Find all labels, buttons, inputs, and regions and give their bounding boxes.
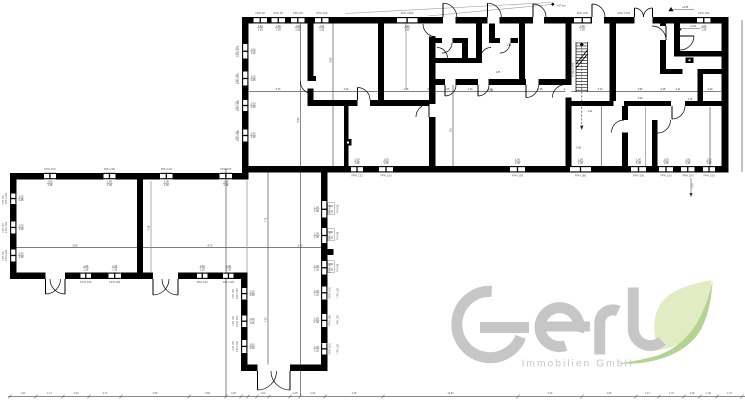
svg-text:2.96: 2.96 bbox=[638, 88, 643, 91]
svg-text:FPH 100: FPH 100 bbox=[161, 167, 172, 171]
svg-text:FPH 100: FPH 100 bbox=[698, 11, 709, 15]
svg-text:2.92: 2.92 bbox=[588, 111, 593, 113]
svg-text:FPH 100: FPH 100 bbox=[235, 288, 239, 299]
svg-text:1.00: 1.00 bbox=[251, 48, 256, 51]
svg-text:1.49: 1.49 bbox=[706, 392, 711, 395]
svg-text:FPH 100: FPH 100 bbox=[80, 280, 91, 284]
svg-text:1.35: 1.35 bbox=[251, 79, 256, 82]
svg-text:FPH 30: FPH 30 bbox=[274, 11, 284, 15]
svg-text:FPH 120: FPH 120 bbox=[197, 280, 208, 284]
svg-text:1.35: 1.35 bbox=[226, 268, 231, 271]
svg-text:1.35: 1.35 bbox=[355, 162, 360, 165]
svg-text:1.35: 1.35 bbox=[664, 162, 669, 165]
svg-text:FPH 100: FPH 100 bbox=[109, 280, 120, 284]
svg-text:1.35: 1.35 bbox=[685, 162, 690, 165]
svg-text:3.93: 3.93 bbox=[330, 57, 333, 62]
svg-text:1.35: 1.35 bbox=[295, 28, 300, 31]
svg-text:1.35: 1.35 bbox=[314, 210, 319, 213]
svg-text:1.35: 1.35 bbox=[319, 28, 324, 31]
svg-text:1.00: 1.00 bbox=[314, 265, 319, 268]
svg-text:4.45: 4.45 bbox=[352, 392, 357, 395]
svg-text:FPH 100: FPH 100 bbox=[232, 316, 235, 326]
svg-text:FPH 100: FPH 100 bbox=[236, 101, 239, 111]
svg-text:2.86: 2.86 bbox=[153, 392, 158, 395]
svg-text:3.10: 3.10 bbox=[598, 88, 603, 91]
svg-text:7.13: 7.13 bbox=[265, 317, 268, 322]
svg-text:FPH 100: FPH 100 bbox=[703, 174, 714, 178]
svg-text:1.35: 1.35 bbox=[251, 136, 256, 139]
svg-text:1.35: 1.35 bbox=[314, 293, 319, 296]
svg-text:FPH 100: FPH 100 bbox=[220, 167, 231, 171]
svg-text:FPH 98: FPH 98 bbox=[328, 263, 332, 273]
svg-text:2.15: 2.15 bbox=[688, 99, 693, 101]
svg-text:FPH 100: FPH 100 bbox=[328, 287, 332, 298]
svg-text:4.30: 4.30 bbox=[344, 88, 349, 91]
svg-text:0.25: 0.25 bbox=[293, 392, 298, 395]
svg-text:2.60: 2.60 bbox=[576, 147, 581, 150]
svg-text:FPH 100: FPH 100 bbox=[44, 167, 55, 171]
svg-text:1.00: 1.00 bbox=[314, 290, 319, 293]
svg-text:1.17: 1.17 bbox=[645, 392, 650, 395]
svg-text:1.35: 1.35 bbox=[47, 184, 52, 187]
svg-text:1.35: 1.35 bbox=[276, 28, 281, 31]
svg-text:FPH 40: FPH 40 bbox=[293, 11, 303, 15]
svg-text:FPH 98: FPH 98 bbox=[337, 231, 340, 240]
svg-text:1.35: 1.35 bbox=[251, 52, 256, 55]
svg-text:FPH 100: FPH 100 bbox=[235, 340, 239, 351]
svg-text:1.35: 1.35 bbox=[19, 199, 24, 202]
svg-text:Immobilien GmbH: Immobilien GmbH bbox=[522, 359, 634, 370]
svg-text:FPH 100: FPH 100 bbox=[577, 11, 588, 15]
svg-text:1.00: 1.00 bbox=[314, 317, 319, 320]
svg-text:2.40: 2.40 bbox=[74, 392, 79, 395]
svg-text:FPH 170F: FPH 170F bbox=[618, 11, 631, 15]
svg-text:FPH 100: FPH 100 bbox=[328, 343, 332, 354]
svg-text:1.66: 1.66 bbox=[607, 392, 612, 395]
svg-text:1.35: 1.35 bbox=[250, 347, 255, 350]
svg-text:1.74: 1.74 bbox=[669, 392, 674, 395]
svg-text:FPH 104: FPH 104 bbox=[2, 251, 5, 261]
svg-text:1.02: 1.02 bbox=[261, 392, 266, 395]
svg-text:FPH 120: FPH 120 bbox=[316, 11, 327, 15]
svg-text:1.00: 1.00 bbox=[19, 196, 24, 199]
svg-text:FPH 104: FPH 104 bbox=[2, 195, 5, 205]
svg-text:0.99: 0.99 bbox=[464, 45, 469, 47]
svg-text:1.46: 1.46 bbox=[690, 392, 695, 395]
svg-text:2.43: 2.43 bbox=[310, 392, 315, 395]
svg-text:FPH 100: FPH 100 bbox=[337, 288, 340, 298]
svg-text:FPH 120: FPH 120 bbox=[223, 280, 234, 284]
svg-text:0.25: 0.25 bbox=[661, 88, 666, 91]
svg-text:10.82: 10.82 bbox=[447, 392, 454, 395]
svg-text:1.35: 1.35 bbox=[384, 162, 389, 165]
svg-text:FPH 104: FPH 104 bbox=[2, 223, 5, 233]
svg-text:FPH 98: FPH 98 bbox=[328, 230, 332, 240]
svg-text:1.07: 1.07 bbox=[727, 392, 732, 395]
svg-text:1.13: 1.13 bbox=[468, 88, 473, 91]
svg-text:3.26: 3.26 bbox=[548, 392, 553, 395]
svg-text:1.35: 1.35 bbox=[164, 184, 169, 187]
svg-text:FPH 100: FPH 100 bbox=[232, 289, 235, 299]
svg-text:2.49: 2.49 bbox=[708, 88, 713, 91]
svg-text:1.35: 1.35 bbox=[701, 28, 706, 31]
svg-text:1.35: 1.35 bbox=[250, 294, 255, 297]
svg-text:1.35: 1.35 bbox=[250, 322, 255, 325]
svg-text:+0.61: +0.61 bbox=[690, 25, 697, 28]
svg-text:1.00: 1.00 bbox=[314, 233, 319, 236]
svg-text:FPH 100: FPH 100 bbox=[512, 174, 523, 178]
svg-text:1.00: 1.00 bbox=[250, 291, 255, 294]
svg-text:1.35: 1.35 bbox=[223, 184, 228, 187]
svg-text:+3.05: +3.05 bbox=[682, 6, 689, 9]
svg-text:1.35: 1.35 bbox=[314, 268, 319, 271]
svg-text:1.00: 1.00 bbox=[314, 346, 319, 349]
svg-text:1.35: 1.35 bbox=[405, 28, 410, 31]
svg-text:7.71: 7.71 bbox=[265, 217, 268, 222]
svg-text:FPH 100: FPH 100 bbox=[633, 174, 644, 178]
svg-text:17 Stg 17,6/29: 17 Stg 17,6/29 bbox=[572, 62, 575, 77]
svg-text:1.00: 1.00 bbox=[251, 133, 256, 136]
svg-text:0.25: 0.25 bbox=[231, 392, 236, 395]
svg-text:FPH 190F: FPH 190F bbox=[401, 11, 414, 15]
svg-text:4.99: 4.99 bbox=[638, 97, 643, 100]
svg-text:FPH 100: FPH 100 bbox=[660, 174, 671, 178]
svg-text:-0.52: -0.52 bbox=[693, 183, 695, 189]
svg-text:1.13: 1.13 bbox=[507, 45, 512, 47]
svg-text:1.00: 1.00 bbox=[19, 252, 24, 255]
svg-text:1.00: 1.00 bbox=[250, 318, 255, 321]
svg-text:FPH 100: FPH 100 bbox=[682, 174, 693, 178]
svg-text:1.35: 1.35 bbox=[19, 256, 24, 259]
svg-text:5.50: 5.50 bbox=[73, 244, 78, 247]
svg-text:5.93: 5.93 bbox=[297, 117, 300, 122]
svg-text:1.35: 1.35 bbox=[251, 106, 256, 109]
svg-text:FPH 40: FPH 40 bbox=[256, 11, 266, 15]
svg-text:FPH 98: FPH 98 bbox=[328, 204, 332, 214]
svg-text:1.35: 1.35 bbox=[200, 268, 205, 271]
svg-text:1.00: 1.00 bbox=[250, 343, 255, 346]
svg-text:FPH 100: FPH 100 bbox=[104, 167, 115, 171]
svg-text:1.35: 1.35 bbox=[515, 162, 520, 165]
svg-text:FPH 100: FPH 100 bbox=[232, 341, 235, 351]
svg-text:1.35: 1.35 bbox=[578, 162, 583, 165]
svg-text:1.35: 1.35 bbox=[636, 162, 641, 165]
svg-text:1.62: 1.62 bbox=[21, 392, 26, 395]
svg-text:FPH 176: FPH 176 bbox=[236, 74, 239, 84]
svg-text:1.35: 1.35 bbox=[314, 349, 319, 352]
svg-text:2.11: 2.11 bbox=[676, 88, 681, 91]
svg-text:+0? um: +0? um bbox=[557, 5, 565, 8]
svg-text:4.74: 4.74 bbox=[276, 88, 281, 91]
svg-text:1.17: 1.17 bbox=[47, 392, 52, 395]
svg-text:1.46: 1.46 bbox=[404, 88, 409, 91]
svg-text:FPH 100: FPH 100 bbox=[380, 174, 391, 178]
svg-text:FPH 100: FPH 100 bbox=[235, 315, 239, 326]
svg-text:1.00: 1.00 bbox=[314, 206, 319, 209]
svg-text:1.35: 1.35 bbox=[314, 236, 319, 239]
svg-text:10.49: 10.49 bbox=[487, 90, 494, 93]
svg-text:FPH 132: FPH 132 bbox=[351, 174, 362, 178]
svg-text:FPH 180: FPH 180 bbox=[575, 174, 586, 178]
svg-text:FPH 98: FPH 98 bbox=[337, 204, 340, 213]
svg-text:1.00: 1.00 bbox=[251, 103, 256, 106]
svg-text:1.00: 1.00 bbox=[19, 224, 24, 227]
svg-text:1.00: 1.00 bbox=[251, 76, 256, 79]
svg-text:1.35: 1.35 bbox=[314, 321, 319, 324]
svg-text:FPH 100: FPH 100 bbox=[337, 344, 340, 354]
svg-text:8.5: 8.5 bbox=[450, 128, 453, 132]
svg-text:2.59: 2.59 bbox=[205, 392, 210, 395]
svg-text:1.35: 1.35 bbox=[83, 268, 88, 271]
svg-text:FPH 100: FPH 100 bbox=[337, 315, 340, 325]
svg-text:FPH 100: FPH 100 bbox=[236, 131, 239, 141]
svg-text:FPH 100: FPH 100 bbox=[328, 314, 332, 325]
svg-text:1.35: 1.35 bbox=[112, 268, 117, 271]
svg-text:FPH 98: FPH 98 bbox=[337, 263, 340, 272]
svg-text:1.35: 1.35 bbox=[258, 28, 263, 31]
svg-text:4.26: 4.26 bbox=[148, 225, 151, 230]
svg-text:8.73: 8.73 bbox=[208, 244, 213, 247]
svg-text:1.85: 1.85 bbox=[496, 72, 501, 74]
svg-text:4.17: 4.17 bbox=[103, 392, 108, 395]
svg-text:FPH 176: FPH 176 bbox=[236, 47, 239, 57]
svg-text:1.35: 1.35 bbox=[19, 228, 24, 231]
svg-text:1.35: 1.35 bbox=[107, 184, 112, 187]
svg-text:1.35: 1.35 bbox=[580, 28, 585, 31]
svg-text:1.35: 1.35 bbox=[707, 162, 712, 165]
